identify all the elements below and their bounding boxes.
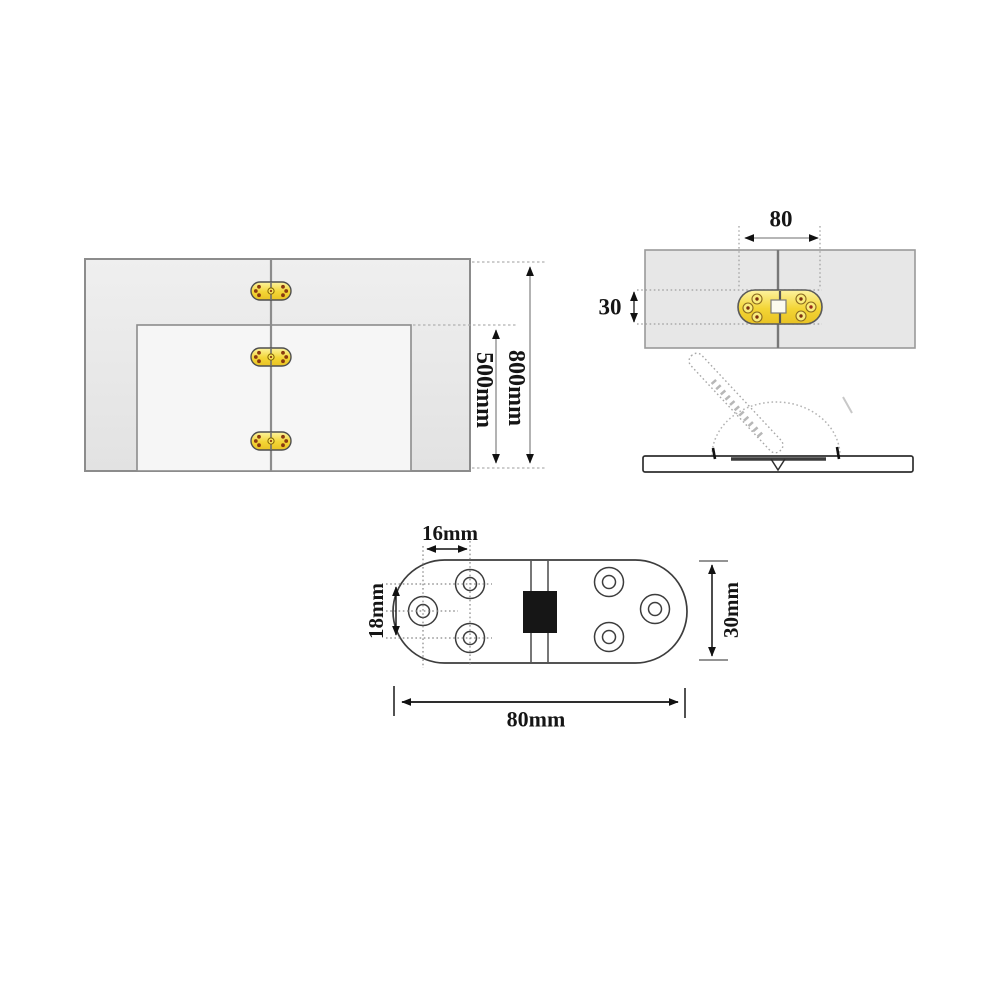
hinge-bottom: [251, 432, 291, 450]
installed-top-view: 80 30: [599, 207, 916, 349]
technical-drawing-canvas: 500mm 800mm 80 30: [0, 0, 1000, 1000]
hinge-detail-view: 16mm 18mm 30mm 80mm: [364, 521, 743, 732]
dimension-label-800mm: 800mm: [503, 350, 529, 426]
hinge-installed: [738, 290, 822, 324]
rotation-arc: [712, 402, 840, 456]
dimension-label-16mm: 16mm: [422, 521, 478, 545]
hinge-pivot-block: [523, 591, 557, 633]
flap-rotated-ghost: [686, 350, 786, 455]
dimension-label-80mm: 80mm: [507, 707, 566, 732]
dimension-label-30: 30: [599, 295, 622, 320]
hinge-top: [251, 282, 291, 300]
hinge-drawing-svg: 500mm 800mm 80 30: [0, 0, 1000, 1000]
hinge-knuckle: [771, 300, 786, 313]
arc-tick-faint: [843, 397, 852, 413]
dimension-label-18mm: 18mm: [364, 583, 388, 639]
hinge-middle: [251, 348, 291, 366]
assembly-view: 500mm 800mm: [85, 259, 547, 471]
dimension-label-30mm: 30mm: [719, 582, 743, 638]
dimension-label-80: 80: [770, 207, 793, 232]
folding-side-view: [643, 350, 913, 472]
flap-ghost-hatching: [713, 381, 762, 437]
dimension-label-500mm: 500mm: [471, 352, 497, 428]
